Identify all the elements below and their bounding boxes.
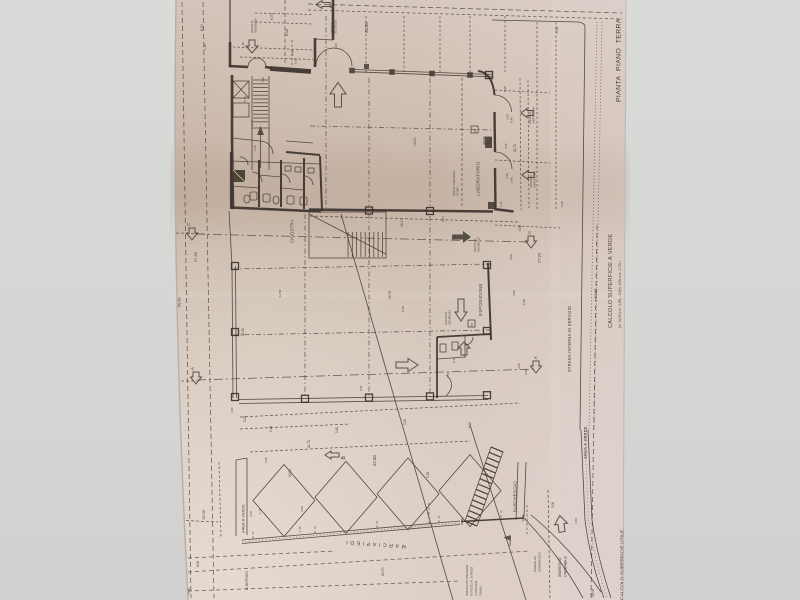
svg-text:SICUREZZA: SICUREZZA [254, 18, 258, 33]
svg-text:11.70: 11.70 [307, 440, 311, 448]
svg-text:11.70: 11.70 [513, 144, 517, 152]
svg-text:1.75: 1.75 [298, 526, 302, 532]
svg-text:1.30: 1.30 [203, 44, 207, 50]
svg-text:3.00: 3.00 [334, 43, 338, 49]
svg-text:1.00: 1.00 [574, 518, 578, 524]
svg-text:LABORATORIO: LABORATORIO [476, 161, 481, 196]
svg-text:CARRABILE: CARRABILE [564, 556, 568, 577]
svg-text:4.60: 4.60 [512, 290, 516, 296]
svg-text:5.60: 5.60 [518, 225, 522, 231]
svg-text:ESPOSIZIONE: ESPOSIZIONE [478, 283, 483, 316]
svg-text:22.50: 22.50 [372, 455, 377, 466]
svg-text:1.75: 1.75 [258, 508, 262, 514]
svg-text:AREA A VERDE: AREA A VERDE [241, 504, 246, 533]
svg-text:6.70: 6.70 [270, 13, 274, 20]
svg-text:23.70: 23.70 [381, 567, 385, 576]
svg-text:5.40: 5.40 [468, 422, 472, 428]
svg-text:27.90: 27.90 [537, 252, 542, 263]
svg-text:AREA A VERDE: AREA A VERDE [583, 426, 588, 459]
svg-text:5.40: 5.40 [522, 299, 526, 305]
svg-text:15.70: 15.70 [388, 291, 392, 299]
svg-text:B: B [330, 5, 336, 9]
svg-text:0.20: 0.20 [294, 58, 298, 64]
svg-text:22.50: 22.50 [364, 21, 369, 33]
svg-text:5.70: 5.70 [243, 96, 247, 102]
svg-text:STRADA INTERNA DI SERVIZIO: STRADA INTERNA DI SERVIZIO [567, 306, 572, 372]
svg-text:16.10: 16.10 [400, 218, 404, 227]
svg-text:PARCHEGGIO: PARCHEGGIO [513, 481, 518, 512]
svg-text:USCITA DI: USCITA DI [444, 312, 448, 325]
svg-text:DISABILI: DISABILI [480, 585, 483, 596]
svg-text:2.60: 2.60 [250, 120, 254, 126]
svg-text:DI PERSONE: DI PERSONE [475, 580, 478, 596]
svg-text:1.00: 1.00 [555, 27, 559, 33]
svg-text:CHIOSTRA: CHIOSTRA [290, 219, 295, 243]
svg-text:11.20: 11.20 [241, 328, 245, 336]
svg-text:2.40: 2.40 [504, 143, 508, 149]
svg-text:50.00: 50.00 [591, 589, 595, 597]
svg-text:C: C [186, 223, 191, 226]
svg-text:5.40: 5.40 [524, 369, 528, 375]
svg-text:6.10: 6.10 [200, 24, 204, 31]
svg-text:LABORATORIO: LABORATORIO [533, 107, 536, 124]
svg-text:5.40: 5.40 [269, 426, 273, 432]
svg-text:3.10: 3.10 [253, 145, 257, 151]
svg-text:2.50: 2.50 [446, 372, 450, 378]
svg-text:A SERVIZI: A SERVIZI [244, 571, 249, 590]
svg-text:5.40: 5.40 [510, 117, 514, 123]
svg-text:PIANTA PIANO TERRA: PIANTA PIANO TERRA [616, 18, 623, 102]
svg-text:3.55: 3.55 [264, 457, 268, 463]
svg-text:SCORREVOLE: SCORREVOLE [538, 552, 542, 572]
svg-text:LABORATORIO: LABORATORIO [534, 171, 537, 188]
svg-text:POSTO AUTO RISERVATO: POSTO AUTO RISERVATO [466, 565, 469, 596]
svg-text:1.65: 1.65 [503, 86, 507, 92]
svg-text:0.90: 0.90 [509, 254, 513, 260]
svg-text:AI VEICOLI AL SERVIZIO: AI VEICOLI AL SERVIZIO [471, 567, 474, 596]
svg-text:SICUREZZA: SICUREZZA [448, 310, 452, 325]
svg-text:14.20: 14.20 [413, 137, 417, 146]
svg-text:3.50: 3.50 [300, 506, 304, 512]
svg-text:4.50: 4.50 [517, 363, 521, 369]
svg-text:5.40: 5.40 [403, 419, 407, 425]
svg-text:16.00: 16.00 [201, 509, 206, 520]
svg-text:USCITA DI: USCITA DI [473, 239, 477, 252]
svg-text:AD IMP: AD IMP [457, 187, 460, 196]
svg-text:11.50: 11.50 [278, 289, 282, 297]
svg-text:A: A [190, 367, 195, 370]
svg-text:3.60: 3.60 [505, 173, 509, 179]
svg-text:6.10: 6.10 [285, 29, 289, 36]
svg-text:1.00: 1.00 [560, 201, 564, 207]
svg-text:1.65: 1.65 [499, 201, 503, 207]
svg-text:27.90: 27.90 [193, 251, 198, 262]
svg-text:0.24: 0.24 [441, 216, 445, 222]
svg-text:5.30: 5.30 [401, 306, 405, 312]
svg-text:4.35: 4.35 [291, 50, 295, 56]
svg-text:2.00: 2.00 [243, 416, 247, 422]
svg-text:50.00: 50.00 [594, 289, 598, 298]
svg-text:CANCELLO: CANCELLO [533, 556, 537, 572]
svg-text:5.40: 5.40 [510, 177, 514, 183]
svg-text:5.00: 5.00 [551, 502, 555, 508]
svg-text:0.30: 0.30 [261, 76, 265, 82]
svg-text:0.20: 0.20 [359, 385, 363, 391]
svg-text:SICUREZZA: SICUREZZA [477, 237, 481, 252]
svg-text:3.50: 3.50 [249, 511, 253, 517]
svg-text:A: A [533, 356, 538, 359]
svg-text:(m. 10,00 x m. 3,55) - 1/2(m.: (m. 10,00 x m. 3,55) - 1/2(m. 3,50 x m. … [618, 260, 622, 328]
svg-text:1.40: 1.40 [241, 42, 245, 48]
svg-text:INGRESSO: INGRESSO [558, 557, 562, 577]
svg-text:50.00: 50.00 [178, 297, 182, 307]
svg-text:USCITA DI: USCITA DI [250, 20, 254, 33]
svg-text:9.20: 9.20 [426, 472, 430, 478]
svg-text:5.40: 5.40 [335, 427, 339, 433]
svg-text:2.00: 2.00 [230, 407, 234, 413]
svg-text:10.00: 10.00 [288, 469, 292, 477]
svg-text:2.30: 2.30 [452, 357, 456, 363]
svg-text:SICUREZZA: SICUREZZA [335, 20, 338, 35]
svg-text:CALCOLO SUPERFICIE A VERDE: CALCOLO SUPERFICIE A VERDE [608, 234, 614, 328]
svg-text:6.00: 6.00 [196, 561, 200, 567]
svg-text:C: C [527, 231, 532, 234]
